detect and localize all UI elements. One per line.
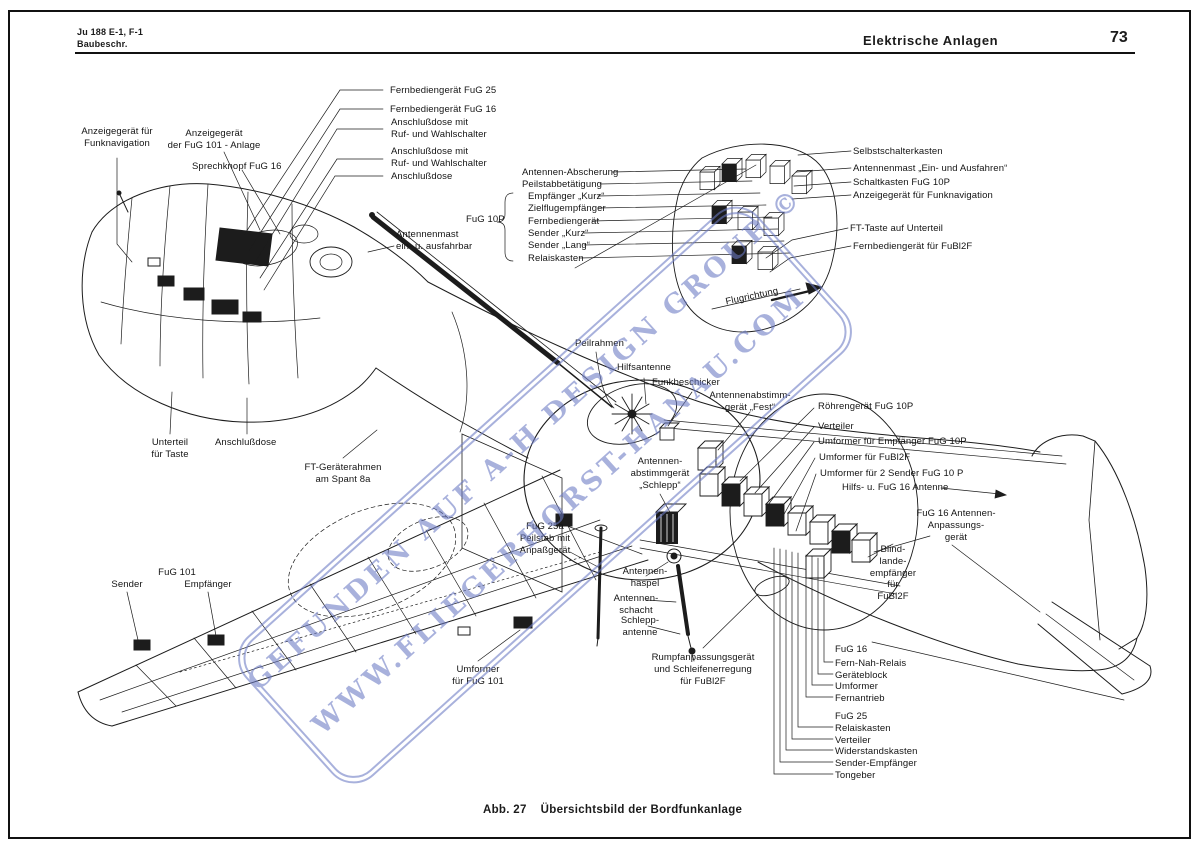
diagram-label: Unterteil für Taste (151, 437, 188, 461)
figure-caption: Abb. 27 Übersichtsbild der Bordfunkanlag… (483, 804, 742, 816)
diagram-label: Fern-Nah-Relais (835, 658, 906, 670)
diagram-label: Zielflugempfänger (528, 203, 606, 215)
diagram-label: Relaiskasten (528, 253, 584, 265)
diagram-label: Sender „Lang“ (528, 240, 590, 252)
diagram-label: Sender „Kurz“ (528, 228, 588, 240)
diagram-label: FuG 25a Peilstab mit Anpaßgerät (520, 521, 571, 556)
diagram-label: Sender (111, 579, 142, 591)
diagram-label: Fernantrieb (835, 693, 885, 705)
diagram-label: Umformer (835, 681, 878, 693)
diagram-label: FuG 25 (835, 711, 867, 723)
diagram-label: Rumpfanpassungsgerät und Schleifenerregu… (652, 652, 755, 687)
diagram-label: Verteiler (835, 735, 871, 747)
diagram-label: Antennenmast ein- u. ausfahrbar (396, 229, 472, 253)
diagram-label: Funkbeschicker (652, 377, 720, 389)
diagram-label: Röhrengerät FuG 10P (818, 401, 913, 413)
diagram-label: Fernbediengerät (528, 216, 599, 228)
figure-title: Übersichtsbild der Bordfunkanlage (541, 804, 743, 816)
diagram-label: Selbstschalterkasten (853, 146, 943, 158)
diagram-label: Geräteblock (835, 670, 887, 682)
diagram-label: Flugrichtung (725, 286, 780, 309)
diagram-label: Antennen- abstimmgerät „Schlepp“ (631, 456, 690, 491)
diagram-label: Antennen-Abscherung (522, 167, 618, 179)
diagram-label: FT-Taste auf Unterteil (850, 223, 943, 235)
diagram-label: FuG 16 Antennen- Anpassungs- gerät (916, 508, 995, 543)
diagram-label: Empfänger „Kurz“ (528, 191, 605, 203)
diagram-label: Fernbediengerät FuG 16 (390, 104, 496, 116)
diagram-labels-layer: Fernbediengerät FuG 25Fernbediengerät Fu… (0, 0, 1200, 848)
diagram-label: Hilfs- u. FuG 16 Antenne (842, 482, 948, 494)
diagram-label: Fernbediengerät für FuBl2F (853, 241, 972, 253)
diagram-label: Tongeber (835, 770, 875, 782)
diagram-label: Antennen- schacht (614, 593, 659, 617)
diagram-label: Sender-Empfänger (835, 758, 917, 770)
diagram-label: Umformer für FuBl2F (819, 452, 910, 464)
diagram-label: Anzeigegerät für Funknavigation (81, 126, 152, 150)
diagram-label: Peilrahmen (575, 338, 624, 350)
diagram-label: FT-Geräterahmen am Spant 8a (305, 462, 382, 486)
diagram-label: Peilstabbetätigung (522, 179, 602, 191)
diagram-label: Blind- lande- empfänger für FuBl2F (870, 544, 916, 603)
diagram-label: FuG 10P (466, 214, 505, 226)
diagram-label: Widerstandskasten (835, 746, 918, 758)
diagram-label: Antennenmast „Ein- und Ausfahren“ (853, 163, 1007, 175)
diagram-label: Verteiler (818, 421, 854, 433)
diagram-label: Anschlußdose mit Ruf- und Wahlschalter (391, 117, 487, 141)
diagram-label: Umformer für FuG 101 (452, 664, 504, 688)
manual-page: Ju 188 E-1, F-1 Baubeschr. Elektrische A… (0, 0, 1200, 848)
diagram-label: Anzeigegerät der FuG 101 - Anlage (168, 128, 261, 152)
diagram-label: FuG 101 (158, 567, 196, 579)
diagram-label: Anzeigegerät für Funknavigation (853, 190, 993, 202)
diagram-label: Antennen- haspel (623, 566, 668, 590)
diagram-label: Relaiskasten (835, 723, 891, 735)
diagram-label: Anschlußdose (391, 171, 452, 183)
diagram-label: Schaltkasten FuG 10P (853, 177, 950, 189)
diagram-label: FuG 16 (835, 644, 867, 656)
diagram-label: Antennenabstimm- gerät „Fest“ (709, 390, 790, 414)
diagram-label: Umformer für Empfänger FuG 10P (818, 436, 967, 448)
diagram-label: Anschlußdose (215, 437, 276, 449)
diagram-label: Fernbediengerät FuG 25 (390, 85, 496, 97)
diagram-label: Anschlußdose mit Ruf- und Wahlschalter (391, 146, 487, 170)
diagram-label: Umformer für 2 Sender FuG 10 P (820, 468, 963, 480)
diagram-label: Hilfsantenne (617, 362, 671, 374)
diagram-label: Schlepp- antenne (621, 615, 659, 639)
figure-number: Abb. 27 (483, 804, 527, 816)
diagram-label: Empfänger (184, 579, 231, 591)
diagram-label: Sprechknopf FuG 16 (192, 161, 281, 173)
